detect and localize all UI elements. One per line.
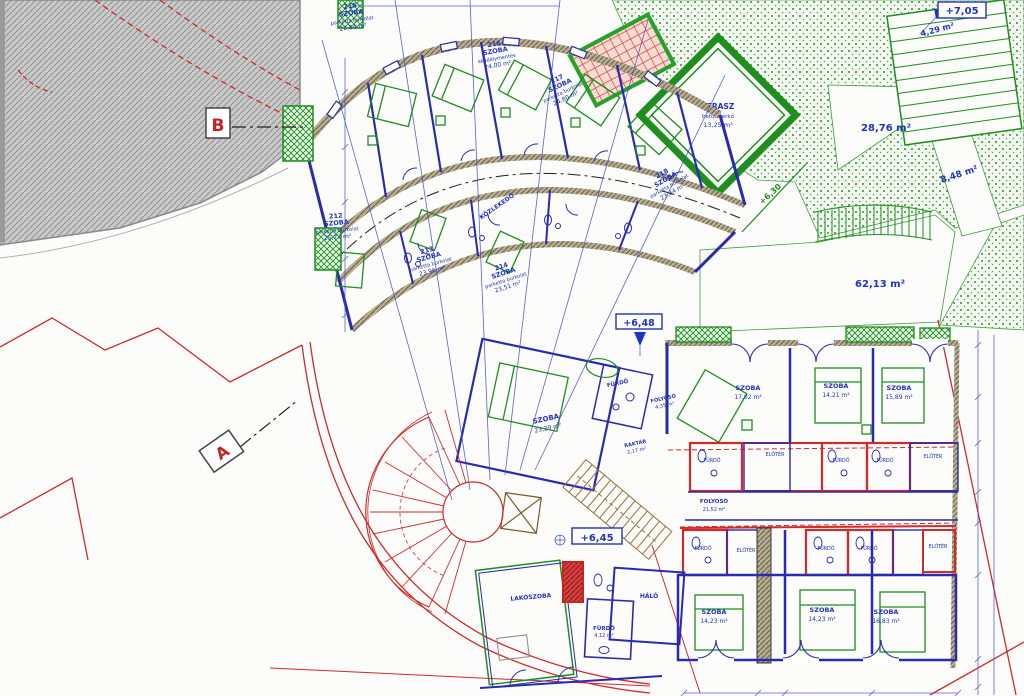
east-furniture bbox=[677, 368, 924, 442]
east-corridor bbox=[685, 492, 958, 520]
east-room3-name: SZOBA bbox=[887, 384, 912, 392]
lift-shaft bbox=[563, 562, 583, 602]
east-corridor-name: FOLYOSÓ bbox=[700, 498, 729, 505]
east-room2-area: 14,21 m² bbox=[822, 392, 850, 399]
south-room3-area: 16,83 m² bbox=[872, 618, 900, 625]
south-lobby1: ELŐTÉR bbox=[737, 546, 756, 554]
apartment-bath-area: 4,12 m² bbox=[594, 633, 614, 639]
south-room2-name: SZOBA bbox=[810, 606, 835, 614]
terrain-edge bbox=[0, 0, 5, 242]
east-bath2: FÜRDŐ bbox=[832, 457, 849, 464]
green-area-1-label: 28,76 m² bbox=[861, 123, 911, 134]
east-room1-name: SZOBA bbox=[736, 384, 761, 392]
south-block: SZOBA 14,23 m² SZOBA 14,23 m² SZOBA 16,8… bbox=[678, 526, 956, 663]
south-room3-name: SZOBA bbox=[874, 608, 899, 616]
south-room1-area: 14,23 m² bbox=[700, 618, 728, 625]
apartment-living-label: LAKÓSZOBA bbox=[510, 592, 552, 603]
south-lobby2: ELŐTÉR bbox=[929, 542, 948, 550]
level-705: +7,05 bbox=[945, 6, 978, 17]
south-balcony-doors bbox=[698, 640, 899, 662]
level-645: +6,45 bbox=[580, 533, 613, 544]
south-bath2: FÜRDŐ bbox=[817, 545, 834, 552]
apartment-unit: LAKÓSZOBA HÁLÓ FÜRDŐ 4,12 m² bbox=[475, 560, 684, 688]
east-room2-name: SZOBA bbox=[824, 382, 849, 390]
level-630: +6,30 bbox=[757, 182, 783, 207]
south-bath3: FÜRDŐ bbox=[860, 545, 877, 552]
east-bath3: FÜRDŐ bbox=[876, 457, 893, 464]
room-212-area: 25,77 m² bbox=[324, 233, 352, 242]
south-bath1: FÜRDŐ bbox=[694, 545, 711, 552]
south-room2-area: 14,23 m² bbox=[808, 616, 836, 623]
duct-shaft bbox=[757, 528, 771, 663]
east-bath1: FÜRDŐ bbox=[703, 457, 720, 464]
crossed-square bbox=[501, 493, 542, 534]
terrace-area: 13,25 m² bbox=[703, 121, 733, 129]
east-lobby1: ELŐTÉR bbox=[766, 450, 785, 458]
terrain-gray-area bbox=[0, 0, 300, 258]
apartment-bath-label: FÜRDŐ bbox=[593, 625, 615, 632]
east-room3-area: 15,89 m² bbox=[885, 394, 913, 401]
center-unit: SZOBA 23,29 m² FÜRDŐ FOLYOSÓ 4,35 m² RAK… bbox=[456, 339, 678, 559]
green-area-3-label: 62,13 m² bbox=[855, 279, 905, 290]
cad-drawing: TERASZ beton térkő 13,25 m² bbox=[0, 0, 1024, 696]
east-room1-area: 17,02 m² bbox=[734, 394, 762, 401]
east-bath-band bbox=[690, 443, 958, 491]
level-648: +6,48 bbox=[623, 318, 655, 329]
floor-plan-canvas: TERASZ beton térkő 13,25 m² bbox=[0, 0, 1024, 696]
apartment-bedroom-label: HÁLÓ bbox=[640, 593, 658, 600]
section-marker-b: B bbox=[212, 116, 225, 136]
east-lobby2: ELŐTÉR bbox=[924, 452, 943, 460]
east-corridor-area: 21,52 m² bbox=[703, 507, 726, 513]
fan-staircase bbox=[366, 410, 503, 614]
south-room1-name: SZOBA bbox=[702, 608, 727, 616]
